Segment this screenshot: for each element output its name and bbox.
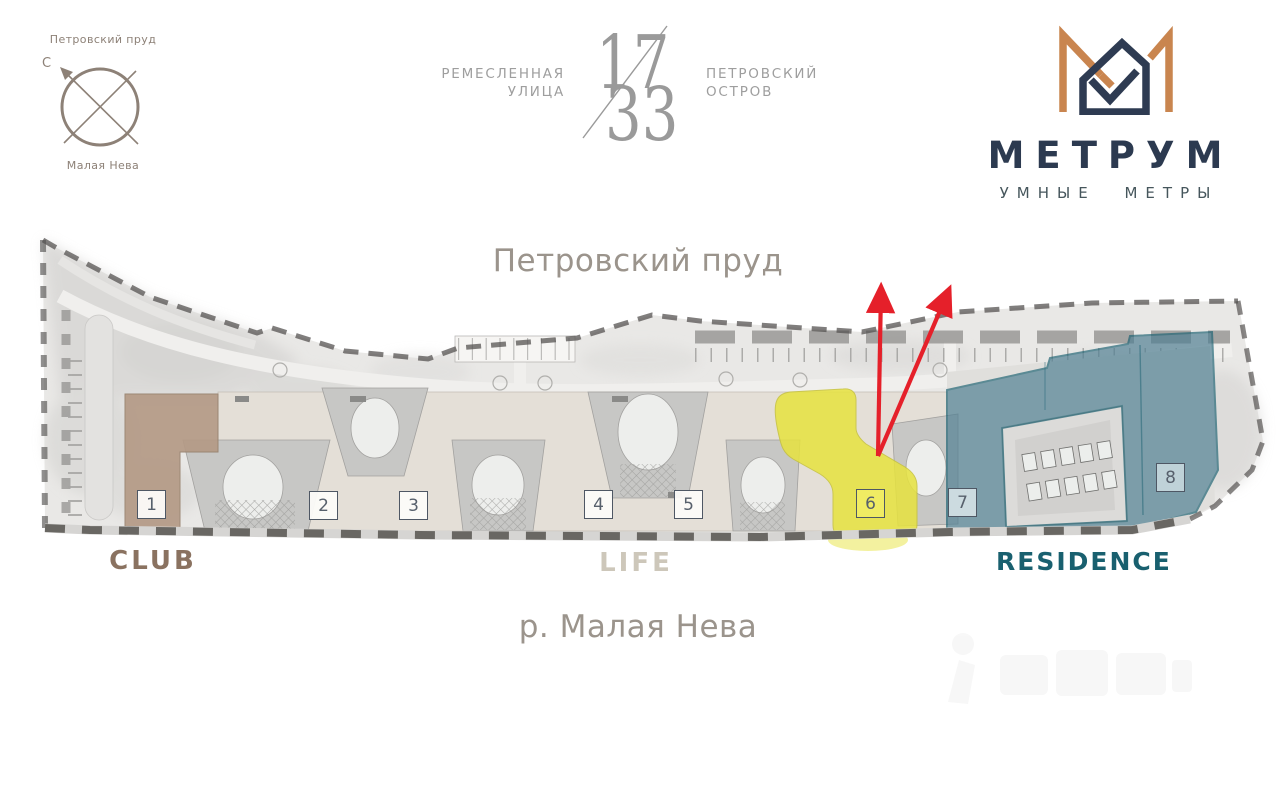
compass-north-letter: С bbox=[42, 56, 51, 71]
building-marker-8: 8 bbox=[1156, 463, 1185, 492]
compass-north-water-label: Петровский пруд bbox=[28, 33, 178, 46]
compass-south-water-label: Малая Нева bbox=[28, 159, 178, 172]
compass-icon bbox=[30, 50, 175, 170]
building-marker-6: 6 bbox=[856, 489, 885, 518]
south-water-label: р. Малая Нева bbox=[438, 609, 838, 645]
location-line1: ПЕТРОВСКИЙ bbox=[706, 66, 886, 84]
building-marker-5: 5 bbox=[674, 490, 703, 519]
building-marker-7: 7 bbox=[948, 488, 977, 517]
site-plan-page: Петровский пруд С Малая Нева РЕМЕСЛЕННАЯ… bbox=[0, 0, 1280, 791]
building-marker-2: 2 bbox=[309, 491, 338, 520]
building-marker-4: 4 bbox=[584, 490, 613, 519]
zone-label-club: CLUB bbox=[103, 546, 203, 576]
zone-label-residence: RESIDENCE bbox=[996, 547, 1171, 576]
street-line2: УЛИЦА bbox=[398, 84, 565, 102]
building-marker-1: 1 bbox=[137, 490, 166, 519]
zone-label-life: LIFE bbox=[586, 548, 686, 578]
project-location-name: ПЕТРОВСКИЙ ОСТРОВ bbox=[706, 66, 886, 101]
brand-name: МЕТРУМ bbox=[955, 134, 1266, 177]
north-water-label: Петровский пруд bbox=[438, 243, 838, 279]
brand-tagline: УМНЫЕ МЕТРЫ bbox=[955, 184, 1263, 202]
watermark bbox=[948, 633, 1192, 704]
project-street-name: РЕМЕСЛЕННАЯ УЛИЦА bbox=[398, 66, 565, 101]
metrum-logo-icon bbox=[1046, 25, 1176, 115]
project-number-33: 33 bbox=[605, 78, 678, 152]
location-line2: ОСТРОВ bbox=[706, 84, 886, 102]
brand-block: МЕТРУМ УМНЫЕ МЕТРЫ bbox=[955, 134, 1255, 202]
street-line1: РЕМЕСЛЕННАЯ bbox=[398, 66, 565, 84]
building-marker-3: 3 bbox=[399, 491, 428, 520]
